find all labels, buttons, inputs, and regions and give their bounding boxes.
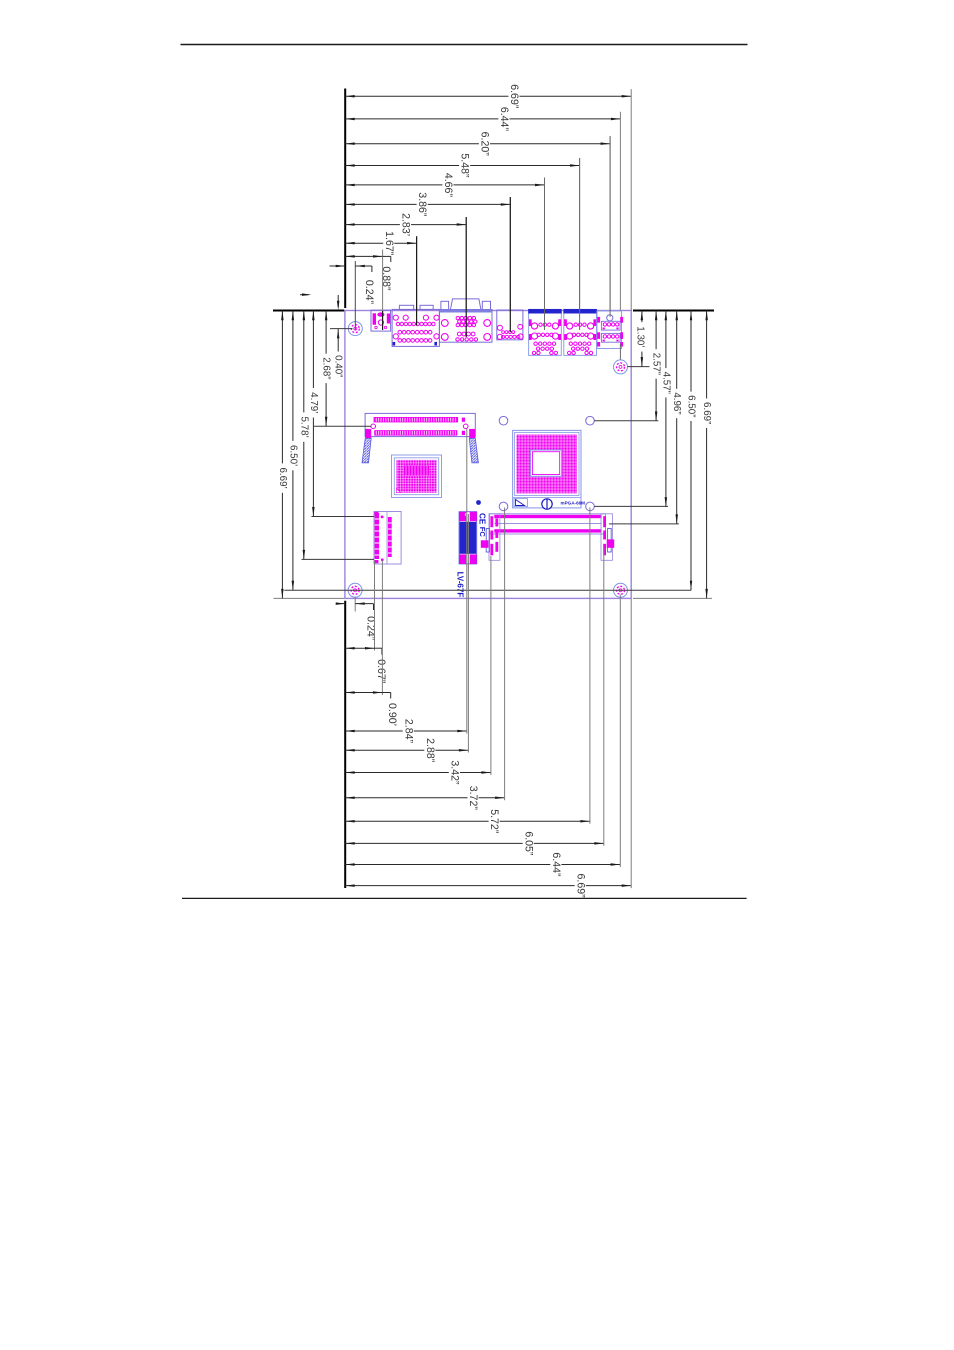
svg-text:6.44”: 6.44” [498, 107, 510, 132]
svg-text:6.69”: 6.69” [701, 402, 712, 424]
svg-text:5.72”: 5.72” [488, 809, 500, 834]
svg-text:1.67”: 1.67” [383, 231, 395, 256]
svg-text:6.05”: 6.05” [522, 831, 534, 856]
svg-text:2.68”: 2.68” [321, 357, 332, 379]
svg-text:6.50”: 6.50” [686, 395, 697, 417]
svg-text:0.40”: 0.40” [333, 355, 344, 377]
svg-text:3.72”: 3.72” [467, 786, 479, 811]
svg-text:2.84”: 2.84” [402, 719, 414, 744]
svg-text:0.88”: 0.88” [380, 266, 392, 291]
svg-text:3.86”: 3.86” [416, 192, 428, 217]
svg-text:4.96”: 4.96” [671, 392, 682, 414]
svg-text:4.79’: 4.79’ [308, 392, 319, 413]
svg-text:5.78’: 5.78’ [298, 416, 309, 437]
svg-text:mPGA-66M: mPGA-66M [561, 501, 586, 506]
svg-text:6.69”: 6.69” [574, 874, 586, 899]
svg-text:4.57”: 4.57” [660, 372, 671, 394]
svg-text:LV-67F: LV-67F [455, 572, 464, 598]
svg-text:2.83’: 2.83’ [400, 213, 412, 236]
svg-text:0.90’: 0.90’ [386, 703, 398, 726]
svg-text:0.24”: 0.24” [363, 280, 375, 305]
svg-text:6.69”: 6.69” [508, 84, 520, 109]
svg-text:2.57”: 2.57” [651, 353, 662, 375]
svg-text:6.20”: 6.20” [479, 132, 491, 157]
svg-text:CE: CE [477, 513, 486, 525]
svg-text:6.50’: 6.50’ [287, 445, 298, 466]
svg-text:6.69’: 6.69’ [277, 467, 288, 488]
svg-text:0.67”: 0.67” [375, 659, 387, 684]
svg-text:FC: FC [478, 527, 487, 538]
svg-text:6.44”: 6.44” [550, 852, 562, 877]
svg-text:2.88”: 2.88” [424, 738, 436, 763]
svg-text:1.30’: 1.30’ [634, 326, 645, 347]
svg-text:5.48”: 5.48” [459, 153, 471, 178]
svg-text:4.66”: 4.66” [442, 173, 454, 198]
svg-text:3.42”: 3.42” [448, 760, 460, 785]
